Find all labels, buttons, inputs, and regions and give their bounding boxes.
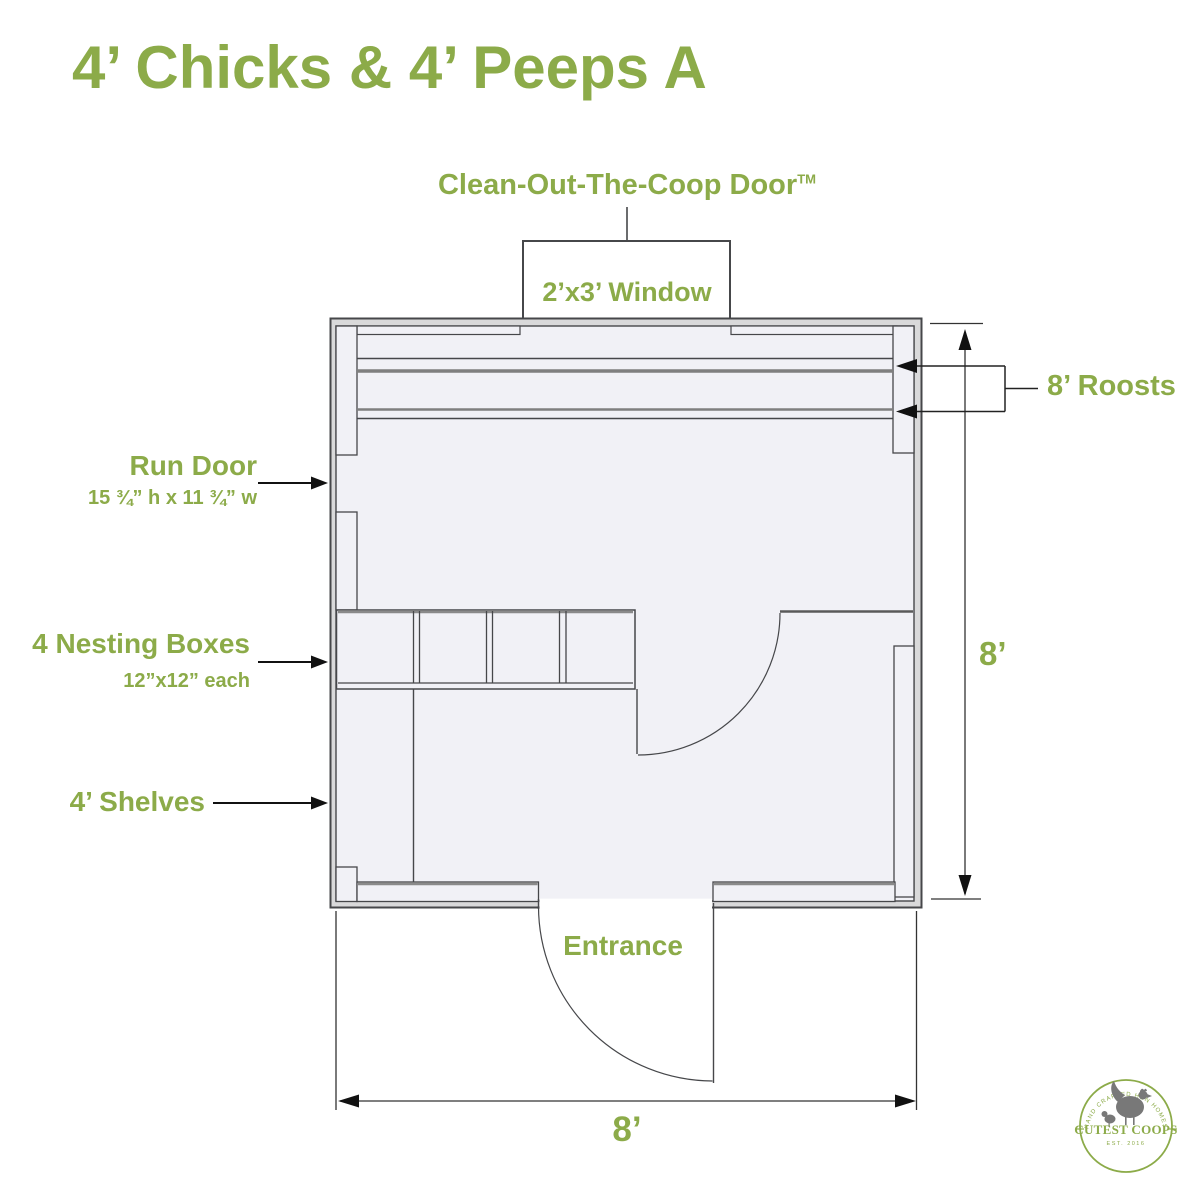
left-stud-bottom [336, 867, 357, 902]
nesting-boxes-spec: 12”x12” each [123, 671, 250, 692]
height-dimension-label: 8’ [979, 637, 1007, 672]
entrance-door [539, 899, 714, 1083]
logo-est: EST. 2016 [1107, 1141, 1146, 1147]
entrance-label: Entrance [523, 931, 723, 960]
shelves-arrow-icon [311, 797, 328, 810]
run-door-arrow-icon [311, 477, 328, 490]
dimension-arrow-up-icon [959, 329, 972, 350]
height-dimension [930, 324, 983, 900]
run-door-spec: 15 ¾” h x 11 ¾” w [88, 488, 257, 509]
left-stud-top [336, 326, 357, 455]
floor-plan-drawing [0, 0, 1200, 1200]
right-stud-top [893, 326, 914, 453]
coop-floor-plan-page: 4’ Chicks & 4’ Peeps A Clean-Out-The-Coo… [0, 0, 1200, 1200]
nesting-boxes-label: 4 Nesting Boxes [32, 629, 250, 658]
dimension-arrow-left-icon [338, 1095, 359, 1108]
roosts-label: 8’ Roosts [1047, 371, 1176, 401]
dimension-arrow-right-icon [895, 1095, 916, 1108]
nesting-boxes [337, 610, 636, 689]
right-wall-panel [894, 646, 914, 897]
width-dimension-label: 8’ [577, 1112, 677, 1149]
shelves-label: 4’ Shelves [70, 787, 205, 816]
run-door-label: Run Door [129, 451, 257, 480]
dimension-arrow-down-icon [959, 875, 972, 896]
left-stud-mid [336, 512, 357, 610]
nesting-boxes-arrow-icon [311, 656, 328, 669]
logo-name: CUTEST COOPS [1074, 1122, 1177, 1137]
cutest-coops-logo: HAND CRAFTED HEN HOMES CUTEST COOPS EST.… [1066, 1066, 1186, 1186]
